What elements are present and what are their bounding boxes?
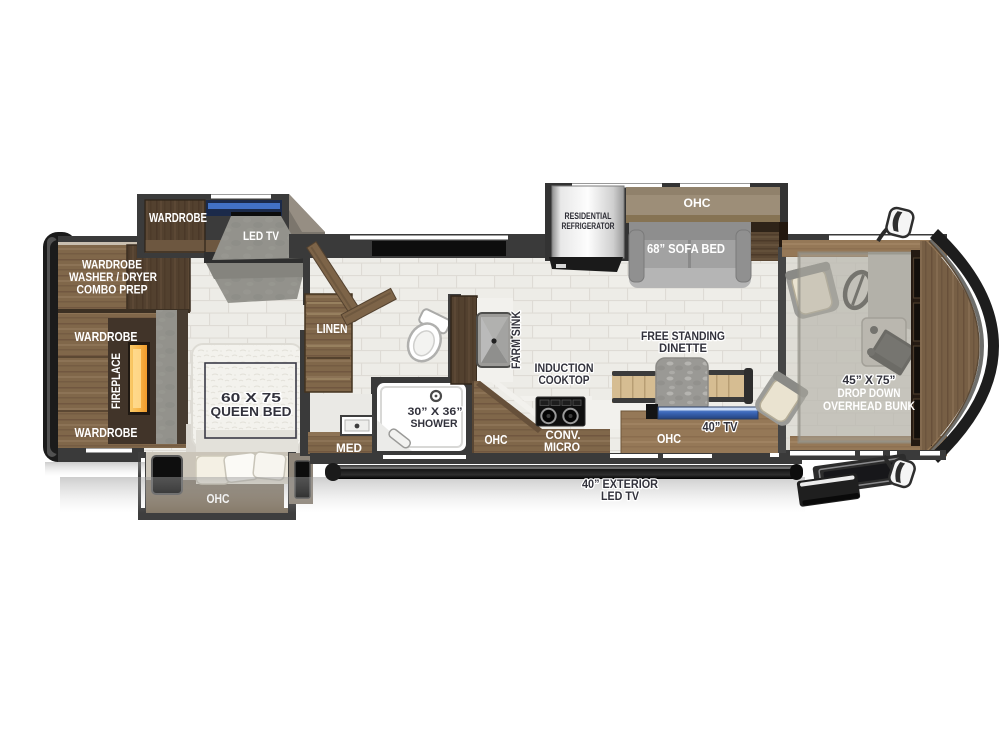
svg-text:FREE STANDING: FREE STANDING	[641, 331, 725, 343]
svg-text:LED TV: LED TV	[243, 229, 279, 243]
svg-text:FARM SINK: FARM SINK	[509, 311, 523, 369]
svg-text:DROP DOWN: DROP DOWN	[838, 386, 901, 400]
svg-text:40” TV: 40” TV	[703, 420, 739, 434]
svg-text:WARDROBE: WARDROBE	[149, 210, 207, 225]
svg-text:LINEN: LINEN	[317, 322, 348, 336]
svg-text:QUEEN BED: QUEEN BED	[211, 404, 292, 419]
svg-text:LED TV: LED TV	[601, 489, 639, 503]
svg-text:COMBO PREP: COMBO PREP	[77, 283, 148, 297]
svg-text:WARDROBE: WARDROBE	[75, 426, 138, 440]
svg-text:REFRIGERATOR: REFRIGERATOR	[562, 221, 615, 231]
svg-text:60 X 75: 60 X 75	[221, 390, 281, 405]
svg-text:30” X 36”: 30” X 36”	[408, 406, 463, 418]
svg-text:FIREPLACE: FIREPLACE	[109, 353, 123, 409]
svg-text:MED: MED	[336, 441, 362, 455]
svg-text:OHC: OHC	[684, 198, 711, 210]
svg-text:MICRO: MICRO	[544, 440, 580, 454]
svg-text:DINETTE: DINETTE	[659, 343, 707, 355]
svg-text:WARDROBE: WARDROBE	[75, 330, 138, 344]
svg-text:OHC: OHC	[657, 431, 682, 446]
svg-text:COOKTOP: COOKTOP	[539, 373, 590, 387]
svg-text:OVERHEAD BUNK: OVERHEAD BUNK	[823, 399, 915, 413]
svg-text:RESIDENTIAL: RESIDENTIAL	[565, 211, 612, 221]
svg-text:68” SOFA BED: 68” SOFA BED	[647, 242, 725, 256]
svg-text:SHOWER: SHOWER	[411, 418, 458, 430]
svg-text:OHC: OHC	[485, 432, 508, 447]
